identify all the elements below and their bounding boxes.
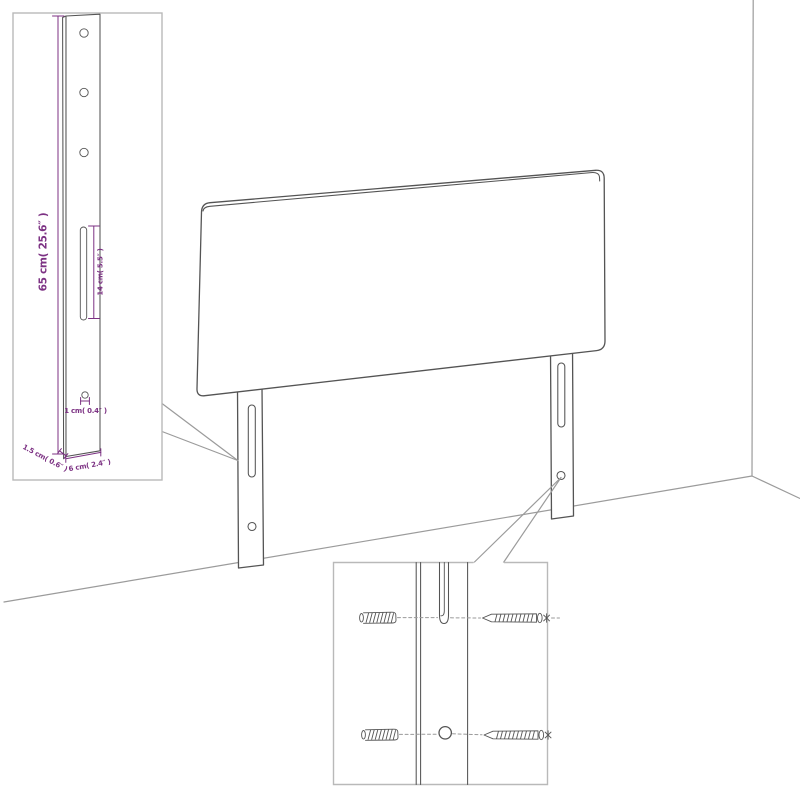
callout-line [504, 478, 562, 563]
headboard-panel-face [197, 170, 605, 396]
callout-line [474, 478, 561, 563]
diagram-canvas: 65 cm( 25.6″ ) 14 cm( 5.5″ ) 1 cm( 0.4″ … [0, 0, 800, 800]
hole-dimension-label: 1 cm( 0.4″ ) [64, 407, 107, 415]
headboard-panel [197, 170, 605, 396]
right-leg [551, 346, 574, 519]
callout-line [162, 404, 238, 461]
callout-right [474, 478, 561, 563]
callout-line [162, 432, 238, 461]
slot-dimension-label: 14 cm( 5.5″ ) [97, 248, 105, 295]
headboard-diagram: 65 cm( 25.6″ ) 14 cm( 5.5″ ) 1 cm( 0.4″ … [0, 0, 800, 800]
leg-detail-inset: 65 cm( 25.6″ ) 14 cm( 5.5″ ) 1 cm( 0.4″ … [13, 13, 162, 480]
height-dimension-label: 65 cm( 25.6″ ) [38, 213, 50, 292]
left-leg [238, 387, 264, 568]
left-leg-body [238, 387, 264, 568]
callout-left [162, 404, 238, 461]
right-leg-body [551, 346, 574, 519]
inset-background [334, 563, 548, 785]
hardware-detail-inset [334, 563, 560, 785]
floor-line-right [752, 476, 800, 499]
wall-corner-line [752, 0, 753, 476]
post-front-face [66, 14, 100, 456]
